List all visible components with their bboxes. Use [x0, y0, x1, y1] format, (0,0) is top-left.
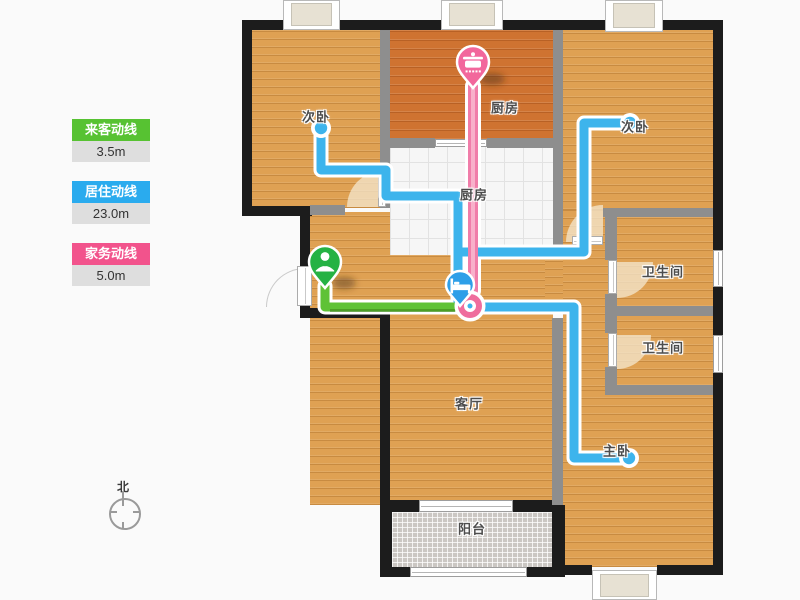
- legend-living-title: 居住动线: [72, 181, 150, 203]
- living-route-casing: [468, 307, 628, 458]
- legend-visitor-title: 来客动线: [72, 119, 150, 141]
- label-kitchen: 厨房: [491, 98, 519, 117]
- label-master-bedroom: 主卧: [603, 441, 631, 460]
- living-route-master[interactable]: [468, 307, 628, 458]
- label-living-room: 客厅: [455, 394, 483, 413]
- visitor-route[interactable]: [325, 286, 458, 307]
- legend-item-living[interactable]: 居住动线 23.0m: [72, 181, 150, 224]
- legend-chore-value: 5.0m: [72, 265, 150, 286]
- label-bathroom-2: 卫生间: [642, 338, 684, 357]
- legend-visitor-value: 3.5m: [72, 141, 150, 162]
- person-pin-shadow: [332, 277, 356, 289]
- route-legend: 来客动线 3.5m 居住动线 23.0m 家务动线 5.0m: [72, 119, 150, 305]
- legend-item-chore[interactable]: 家务动线 5.0m: [72, 243, 150, 286]
- legend-item-visitor[interactable]: 来客动线 3.5m: [72, 119, 150, 162]
- label-bathroom-1: 卫生间: [642, 262, 684, 281]
- legend-living-value: 23.0m: [72, 203, 150, 224]
- label-kitchen-hall: 厨房: [460, 185, 488, 204]
- label-bedroom-right: 次卧: [621, 117, 649, 136]
- floorplan-page: { "legend": { "items": [ {"id":"visitor"…: [0, 0, 800, 600]
- legend-chore-title: 家务动线: [72, 243, 150, 265]
- label-balcony: 阳台: [458, 519, 486, 538]
- compass: 北: [100, 478, 146, 534]
- label-bedroom-left: 次卧: [302, 107, 330, 126]
- living-route-casing: [321, 128, 458, 302]
- compass-circle: [109, 498, 141, 530]
- living-route-bedleft[interactable]: [321, 128, 458, 302]
